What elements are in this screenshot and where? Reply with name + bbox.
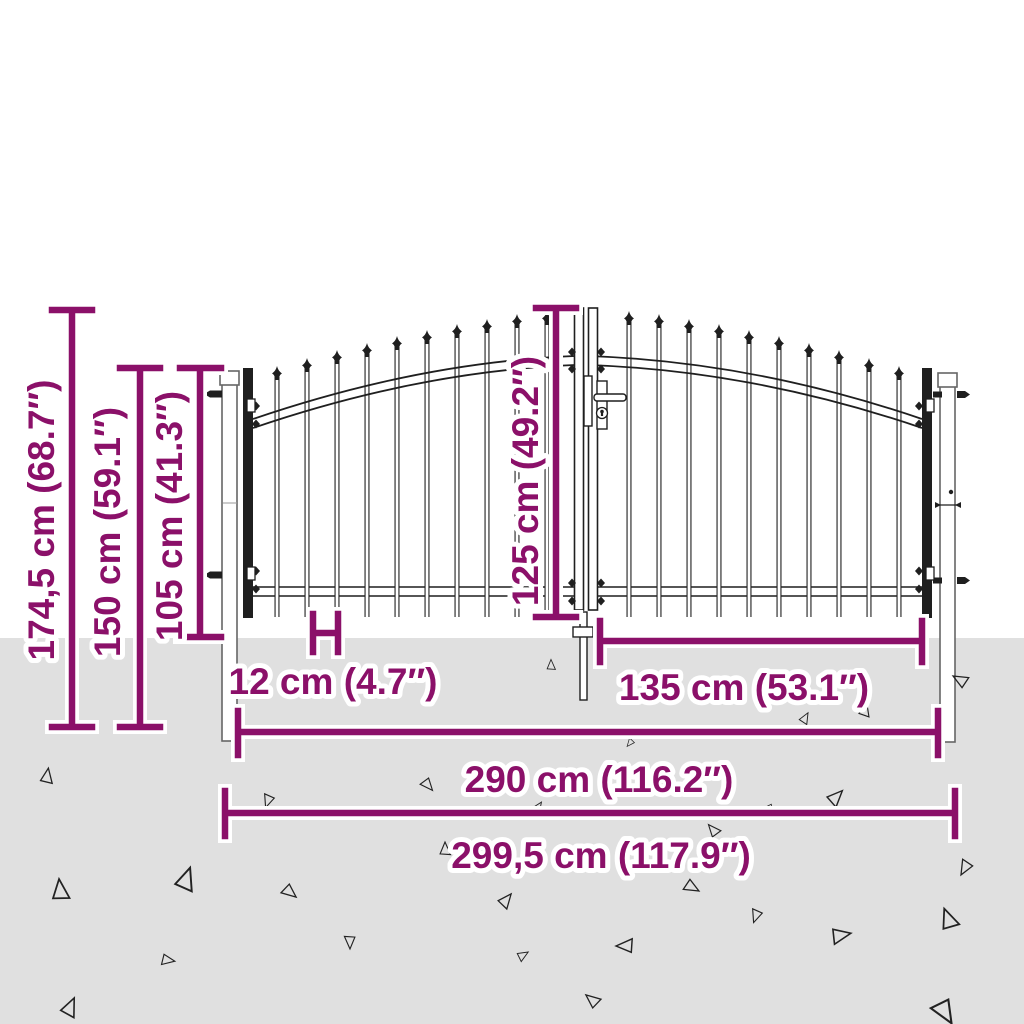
- diagram-canvas: 174,5 cm (68.7″) 150 cm (59.1″) 105 cm (…: [0, 0, 1024, 1024]
- dim-label-door-width: 135 cm (53.1″): [619, 667, 869, 708]
- dim-label-total-height: 174,5 cm (68.7″): [21, 379, 62, 660]
- dim-label-inner-width: 290 cm (116.2″): [465, 759, 734, 800]
- dim-label-total-width: 299,5 cm (117.9″): [451, 835, 751, 876]
- ground-surface: [0, 638, 1024, 1024]
- gate-dimension-diagram: 174,5 cm (68.7″) 150 cm (59.1″) 105 cm (…: [0, 0, 1024, 1024]
- dim-label-side-height: 105 cm (41.3″): [149, 391, 190, 641]
- dim-label-center-height: 125 cm (49.2″): [505, 356, 546, 606]
- gate-handle: [594, 394, 626, 401]
- dim-label-bar-spacing: 12 cm (4.7″): [229, 661, 438, 702]
- dim-label-gate-height: 150 cm (59.1″): [87, 407, 128, 657]
